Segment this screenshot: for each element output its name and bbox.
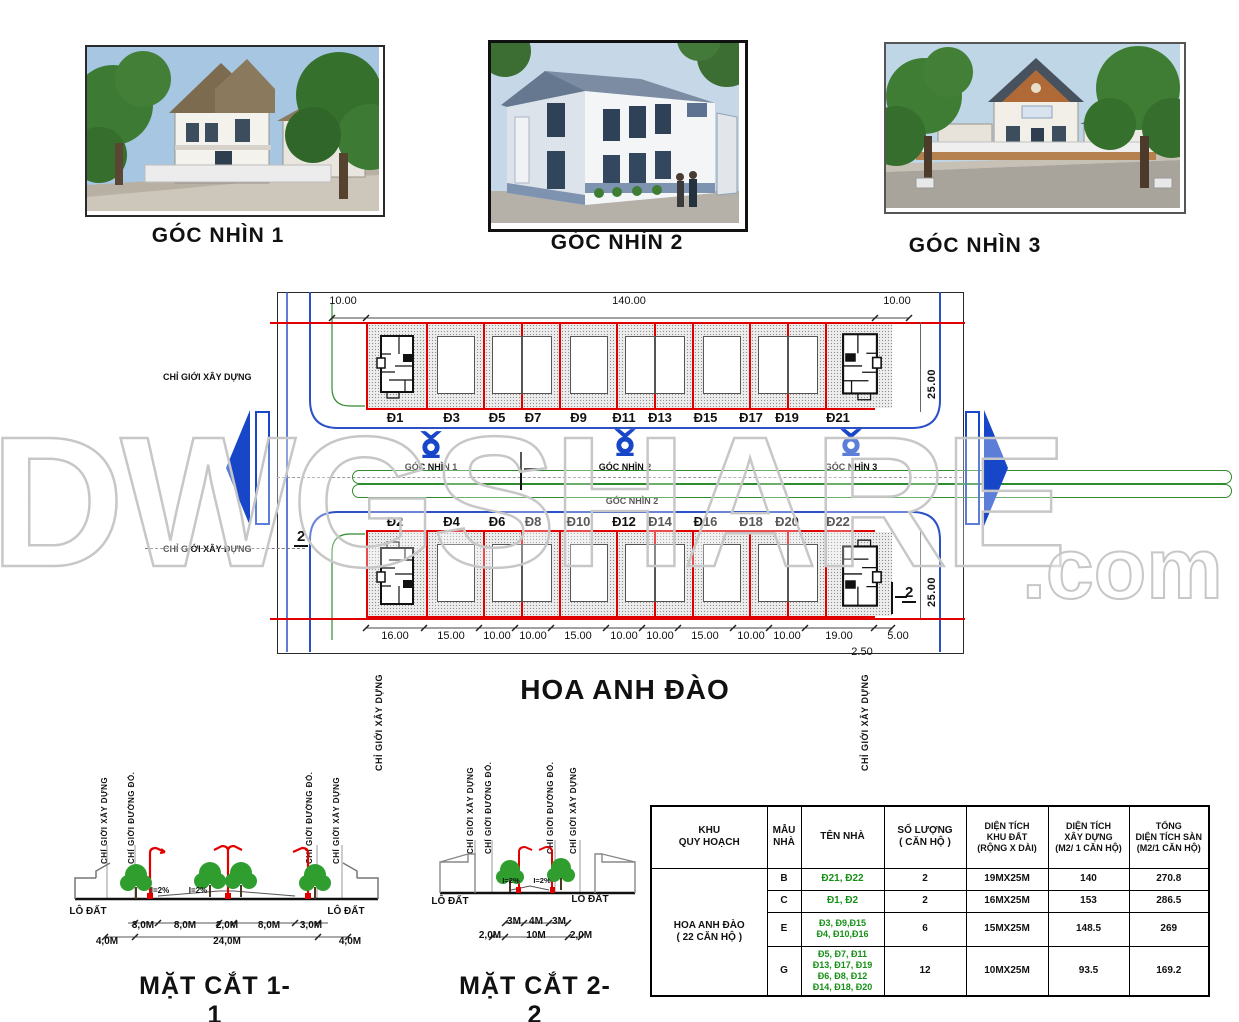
side-dim-label: 25.00 [926,337,938,399]
bottom-dim-label: 5.00 [878,630,918,642]
table-cell-model: B [767,868,801,890]
bottom-dim-label: 10.00 [604,630,644,642]
top-dim-label: 10.00 [872,295,922,307]
table-cell-qty: 6 [884,912,966,946]
lot [561,532,618,616]
building-footprint [522,336,552,394]
render-3-label: GÓC NHÌN 3 [885,234,1065,258]
building-footprint [788,544,818,602]
lot-label: Đ18 [733,514,769,529]
lot [428,324,485,408]
render-1-label: GÓC NHÌN 1 [128,224,308,248]
table-cell-names: Đ21, Đ22 [801,868,884,890]
lot [694,532,751,616]
section1-dim: 3,0M [125,920,161,931]
lot [368,324,428,408]
lot-label: Đ15 [678,410,733,425]
bottom-dim-label: 15.00 [431,630,471,642]
table-cell-build-area: 93.5 [1048,946,1129,996]
table-header-cell: KHU QUY HOẠCH [651,806,767,868]
section1-dim: 4,0M [328,936,372,947]
section2-dim: 2,0M [561,930,601,941]
lot-labels-top: Đ1 Đ3 Đ5 Đ7 Đ9 Đ11 Đ13 Đ15 Đ17 Đ19 Đ21 [366,410,875,425]
render-1-frame [85,45,385,217]
building-footprint [625,336,655,394]
building-footprint [522,544,552,602]
table-header-cell: DIỆN TÍCH XÂY DỰNG (M2/ 1 CĂN HỘ) [1048,806,1129,868]
render-2-image [491,43,739,223]
side-dimension-line [920,528,921,618]
table-cell-floor-area: 270.8 [1129,868,1209,890]
render-1-image [87,47,379,211]
boundary-label-vertical: CHỈ GIỚI XÂY DỰNG [374,656,384,771]
lot-label: Đ3 [424,410,479,425]
lot [751,324,789,408]
camera-icon [838,428,864,456]
bottom-dim-label: 10.00 [767,630,807,642]
table-cell-qty: 2 [884,868,966,890]
section2-red-line-label: CHỈ GIỚI ĐƯỜNG ĐỎ. [546,752,555,854]
boundary-label: CHỈ GIỚI XÂY DỰNG [163,372,273,382]
building-footprint [758,544,788,602]
bottom-dim-label: 15.00 [685,630,725,642]
top-dim-label: 10.00 [318,295,368,307]
camera-icon [612,428,638,456]
lot [827,324,892,408]
lot-label: Đ11 [606,410,642,425]
building-footprint [437,544,475,602]
table-cell-names: Đ5, Đ7, Đ11 Đ13, Đ17, Đ19 Đ6, Đ8, Đ12 Đ1… [801,946,884,996]
section2-dim: 3M [502,916,526,927]
bottom-dim-label: 10.00 [731,630,771,642]
lot-label: Đ17 [733,410,769,425]
lot [789,532,827,616]
floor-plan-detail [375,332,419,402]
lot-label: Đ12 [606,514,642,529]
lot-label: Đ6 [479,514,515,529]
building-footprint [570,336,608,394]
table-cell-plot: 16MX25M [966,890,1048,912]
section1-slope-label: I=2% [181,886,215,895]
lot-label: Đ21 [805,410,871,425]
section1-dim: 2,0M [209,920,245,931]
lot-label: Đ9 [551,410,606,425]
section1-dim: 4,0M [85,936,129,947]
table-cell-plot: 10MX25M [966,946,1048,996]
section2-lot-label: LÔ ĐẤT [426,896,474,907]
bottom-dim-label: 15.00 [558,630,598,642]
building-footprint [570,544,608,602]
table-header-cell: SỐ LƯỢNG ( CĂN HỘ ) [884,806,966,868]
lot-label: Đ1 [366,410,424,425]
render-2-frame [488,40,748,232]
lot [618,532,656,616]
building-footprint [437,336,475,394]
boundary-label-vertical: CHỈ GIỚI XÂY DỰNG [860,656,870,771]
building-footprint [703,544,741,602]
road-arrow-right-icon [962,410,1008,526]
lot-block-bottom [366,530,875,618]
table-cell-names: Đ3, Đ9,Đ15 Đ4, Đ10,Đ16 [801,912,884,946]
section2-slope-label: I=2% [496,876,526,885]
bottom-dim-label: 10.00 [513,630,553,642]
watermark-suffix-text: .com [1022,521,1223,617]
lot-label: Đ14 [642,514,678,529]
building-footprint [788,336,818,394]
lot [618,324,656,408]
section1-dim: 8,0M [251,920,287,931]
table-cell-qty: 12 [884,946,966,996]
planning-summary-table: KHU QUY HOẠCH MẪU NHÀ TÊN NHÀ SỐ LƯỢNG (… [650,805,1210,997]
table-header-cell: DIỆN TÍCH KHU ĐẤT (RỘNG X DÀI) [966,806,1048,868]
table-cell-build-area: 140 [1048,868,1129,890]
lot [368,532,428,616]
lot [827,532,892,616]
lot-label: Đ16 [678,514,733,529]
building-footprint [655,544,685,602]
lot [751,532,789,616]
lot-label: Đ2 [366,514,424,529]
section1-lot-label: LÔ ĐẤT [62,906,114,917]
street-name: HOA ANH ĐÀO [460,674,790,706]
section-cut-1-tick [524,468,538,470]
table-row: HOA ANH ĐÀO ( 22 CĂN HỘ ) B Đ21, Đ22 2 1… [651,868,1209,890]
building-footprint [492,544,522,602]
bottom-dim-label: 10.00 [477,630,517,642]
lot-labels-bottom: Đ2 Đ4 Đ6 Đ8 Đ10 Đ12 Đ14 Đ16 Đ18 Đ20 Đ22 [366,514,875,529]
section1-slope-label: I=2% [143,886,177,895]
section2-lot-label: LÔ ĐẤT [566,894,614,905]
render-2-label: GÓC NHÌN 2 [527,231,707,255]
section1-dim: 8,0M [167,920,203,931]
section1-lot-label: LÔ ĐẤT [320,906,372,917]
lot [523,532,561,616]
section2-dim: 10M [516,930,556,941]
bottom-dim-label: 10.00 [640,630,680,642]
lot [561,324,618,408]
section-cut-2-marker: 2 [902,584,916,603]
section2-slope-label: I=2% [527,876,557,885]
section2-dim: 2,0M [470,930,510,941]
section1-dim: 3,0M [293,920,329,931]
lot [428,532,485,616]
median-strip [352,470,1232,484]
lot-label: Đ4 [424,514,479,529]
lot-label: Đ22 [805,514,871,529]
lot [656,532,694,616]
lot-block-top [366,322,875,410]
lot [523,324,561,408]
section2-dim: 4M [524,916,548,927]
lot-label: Đ8 [515,514,551,529]
table-cell-area: HOA ANH ĐÀO ( 22 CĂN HỘ ) [651,868,767,996]
floor-plan-detail [836,538,884,612]
lot-label: Đ20 [769,514,805,529]
table-cell-build-area: 153 [1048,890,1129,912]
drawing-sheet: GÓC NHÌN 1 [0,0,1239,1022]
table-cell-names: Đ1, Đ2 [801,890,884,912]
section1-dim: 24,0M [205,936,249,947]
section1-title: MẶT CẮT 1-1 [135,972,295,1022]
lot-label: Đ13 [642,410,678,425]
table-cell-model: E [767,912,801,946]
floor-plan-detail [836,330,884,404]
section-cut-2-line [891,582,893,614]
table-cell-build-area: 148.5 [1048,912,1129,946]
table-cell-qty: 2 [884,890,966,912]
side-dimension-line [920,322,921,412]
lot [656,324,694,408]
median-strip [352,484,1232,498]
table-cell-floor-area: 269 [1129,912,1209,946]
building-footprint [703,336,741,394]
red-boundary-bottom [270,618,965,620]
road-arrow-left-icon [226,410,272,526]
bottom-dim-label: 19.00 [819,630,859,642]
lot [485,532,523,616]
table-cell-model: C [767,890,801,912]
floor-plan-detail [375,540,419,610]
table-cell-plot: 15MX25M [966,912,1048,946]
table-header-cell: TỔNG DIỆN TÍCH SÀN (M2/1 CĂN HỘ) [1129,806,1209,868]
top-dim-label: 140.00 [599,295,659,307]
section2-red-line-label: CHỈ GIỚI ĐƯỜNG ĐỎ. [484,752,493,854]
section-cut-2-marker: 2 [294,528,308,547]
render-3-frame [884,42,1186,214]
section-cut-2-line [145,548,305,549]
table-header-cell: MẪU NHÀ [767,806,801,868]
lot-label: Đ10 [551,514,606,529]
lot-label: Đ5 [479,410,515,425]
render-3-image [886,44,1180,208]
lot-label: Đ19 [769,410,805,425]
camera-icon [418,430,444,458]
lot [485,324,523,408]
table-cell-plot: 19MX25M [966,868,1048,890]
boundary-label: CHỈ GIỚI XÂY DỰNG [163,544,273,554]
table-header-cell: TÊN NHÀ [801,806,884,868]
section2-title: MẶT CẮT 2-2 [455,972,615,1022]
building-footprint [655,336,685,394]
table-cell-model: G [767,946,801,996]
section-cut-1-line [520,452,522,490]
table-cell-floor-area: 286.5 [1129,890,1209,912]
building-footprint [625,544,655,602]
lot [694,324,751,408]
building-footprint [758,336,788,394]
building-footprint [492,336,522,394]
lot [789,324,827,408]
section2-dim: 3M [547,916,571,927]
table-cell-floor-area: 169.2 [1129,946,1209,996]
lot-label: Đ7 [515,410,551,425]
bottom-dim-label: 16.00 [375,630,415,642]
side-dim-label: 25.00 [926,543,938,607]
